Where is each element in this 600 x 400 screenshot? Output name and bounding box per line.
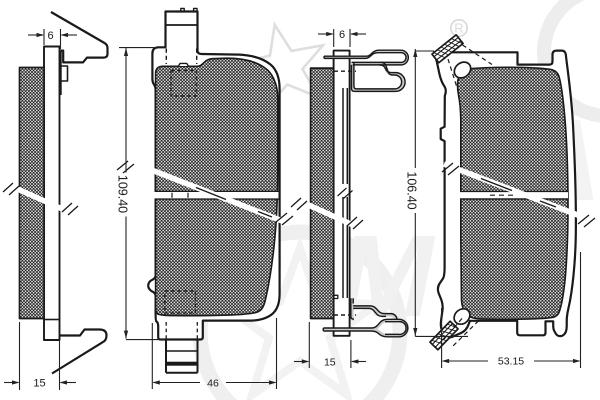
svg-text:109.40: 109.40 bbox=[115, 175, 129, 213]
svg-text:15: 15 bbox=[33, 378, 45, 390]
svg-text:53.15: 53.15 bbox=[498, 356, 524, 368]
svg-text:R: R bbox=[454, 21, 463, 36]
svg-text:106.40: 106.40 bbox=[405, 171, 419, 209]
svg-text:15: 15 bbox=[324, 356, 336, 368]
svg-text:6: 6 bbox=[339, 29, 345, 41]
svg-text:6: 6 bbox=[47, 30, 53, 42]
svg-text:46: 46 bbox=[207, 377, 219, 389]
